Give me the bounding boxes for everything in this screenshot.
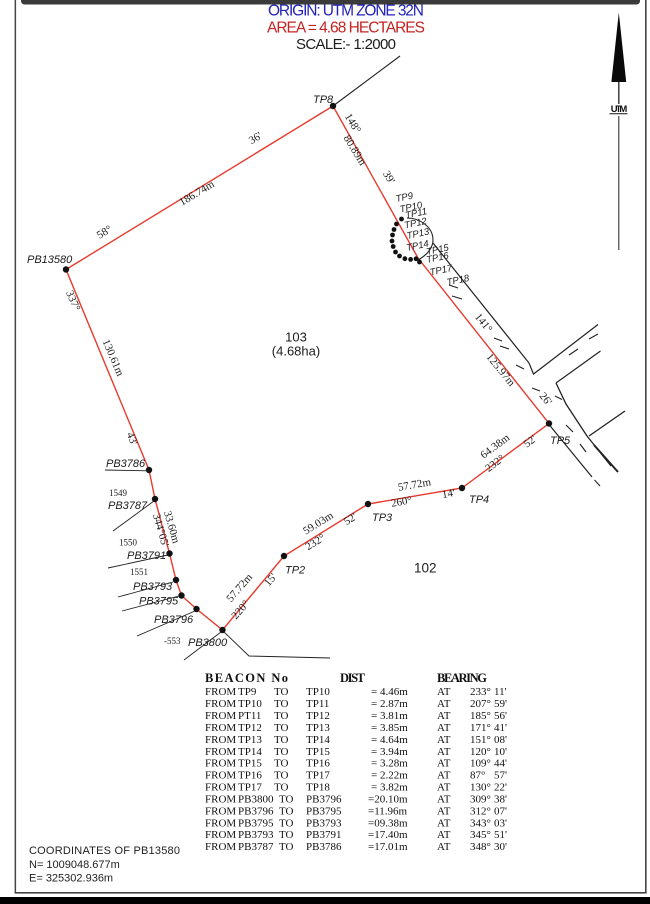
svg-text:TP5: TP5 (550, 435, 571, 447)
svg-text:1549: 1549 (109, 488, 128, 498)
svg-text:N= 1009048.677m: N= 1009048.677m (29, 859, 120, 871)
svg-text:TP8: TP8 (313, 94, 334, 106)
svg-text:TP2: TP2 (285, 565, 305, 577)
svg-text:1551: 1551 (130, 567, 148, 577)
svg-text:PB3791: PB3791 (127, 550, 166, 562)
svg-text:SCALE:- 1:2000: SCALE:- 1:2000 (296, 36, 396, 53)
svg-text:COORDINATES OF PB13580: COORDINATES OF PB13580 (29, 845, 180, 857)
svg-text:E= 325302.936m: E= 325302.936m (29, 873, 113, 885)
svg-text:BEARING: BEARING (437, 671, 487, 685)
svg-text:DIST: DIST (340, 671, 366, 685)
svg-text:TP3: TP3 (372, 512, 393, 524)
svg-text:14': 14' (441, 487, 456, 501)
svg-text:PB3800: PB3800 (188, 637, 228, 649)
svg-text:(4.68ha): (4.68ha) (272, 344, 320, 359)
svg-text:103: 103 (285, 330, 307, 345)
svg-text:ORIGIN: UTM ZONE 32N: ORIGIN: UTM ZONE 32N (268, 3, 424, 20)
svg-text:TP4: TP4 (469, 494, 489, 506)
svg-text:1550: 1550 (119, 538, 138, 548)
svg-text:AREA = 4.68 HECTARES: AREA = 4.68 HECTARES (267, 20, 425, 37)
svg-text:102: 102 (414, 561, 437, 576)
svg-text:-553: -553 (164, 636, 181, 646)
svg-text:PB3786: PB3786 (106, 458, 146, 470)
svg-text:PB13580: PB13580 (27, 254, 73, 266)
svg-text:BEACON No: BEACON No (205, 671, 288, 685)
